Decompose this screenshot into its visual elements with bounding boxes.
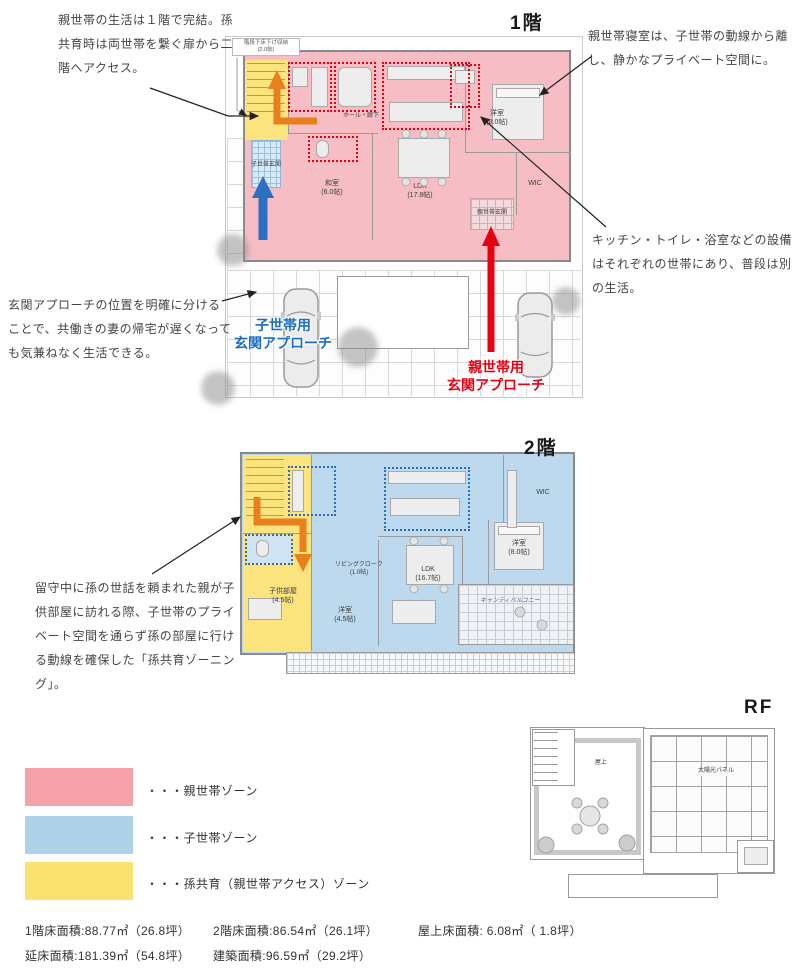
room-label-hall: ホール・廊下 (338, 113, 384, 121)
room-label-stair-storage: 階段下床下げ収納 (2.0帖) (232, 38, 300, 56)
pillow-icon-2f (498, 526, 540, 535)
floorplan-diagram: 親世帯の生活は１階で完結。孫共育時は両世帯を繋ぐ扉から二階へアクセス。 1階 親… (0, 0, 800, 975)
washitsu-name: 和室 (310, 180, 354, 189)
stat-roof-area: 屋上床面積: 6.08㎡（ 1.8坪） (418, 922, 582, 939)
floor2-title: 2階 (524, 433, 558, 460)
child-approach-line2: 玄関アプローチ (226, 334, 340, 352)
room-label-kids-room: 子供部屋 (4.5帖) (259, 588, 307, 606)
legend-swatch-child (25, 816, 133, 854)
child-approach-line1: 子世帯用 (226, 316, 340, 334)
floor2-stairs (246, 459, 284, 517)
wall (378, 540, 379, 646)
annotation-life-complete: 親世帯の生活は１階で完結。孫共育時は両世帯を繋ぐ扉から二階へアクセス。 (58, 8, 240, 80)
ldk-name-2f: LDK (407, 566, 449, 575)
floor2-toilet-box (245, 534, 293, 565)
wall (488, 520, 489, 584)
room-label-ldk-2f: LDK (16.7帖) (407, 566, 449, 584)
room-label-parent-entrance: 親世帯玄関 (468, 210, 516, 218)
bedroom-name-1f: 洋室 (470, 110, 524, 119)
room-label-wic-1f: WIC (518, 180, 552, 189)
living-cloak-name: リビングクローク (332, 562, 386, 570)
floor2-balcony (286, 652, 575, 674)
ldk-size-1f: (17.8帖) (398, 192, 442, 201)
floor1-washroom-box (288, 62, 332, 112)
wall (503, 455, 504, 532)
child-approach-label: 子世帯用 玄関アプローチ (226, 316, 340, 352)
legend-label-child: ・・・子世帯ゾーン (146, 829, 258, 846)
stat-building-area: 建築面積:96.59㎡（29.2坪） (213, 947, 371, 964)
room-label-living-cloak: リビングクローク (1.0帖) (332, 562, 386, 577)
parent-approach-line2: 玄関アプローチ (438, 376, 554, 394)
wall (465, 152, 571, 153)
legend-label-parent: ・・・親世帯ゾーン (146, 782, 258, 799)
legend-swatch-parent (25, 768, 133, 806)
washitsu-size: (6.0帖) (310, 189, 354, 198)
room-label-child-entrance: 子世帯玄関 (249, 162, 283, 170)
parent-approach-line1: 親世帯用 (438, 358, 554, 376)
wall (372, 133, 373, 240)
roof-stairs (534, 732, 558, 782)
ldk-name-1f: LDK (398, 183, 442, 192)
bedroom-main-name: 洋室 (497, 540, 541, 549)
floor1-utility-box (450, 64, 480, 108)
room-label-wic-2f: WIC (527, 489, 559, 498)
room-label-rooftop: 屋上 (584, 760, 618, 768)
annotation-facilities: キッチン・トイレ・浴室などの設備はそれぞれの世帯にあり、普段は別の生活。 (592, 228, 798, 300)
kids-room-size: (4.5帖) (259, 597, 307, 606)
stat-floor2-area: 2階床面積:86.54㎡（26.1坪） (213, 922, 378, 939)
dining-table-icon-1f (398, 138, 450, 178)
wall (288, 133, 378, 134)
parent-approach-label: 親世帯用 玄関アプローチ (438, 358, 554, 394)
roof-bottom-strip (568, 874, 718, 898)
stair-storage-size: (2.0帖) (234, 47, 298, 54)
floor1-bath-box (334, 62, 376, 112)
floor2-washroom-box (288, 466, 336, 516)
wic-closet-icon-2f (507, 470, 517, 528)
floor1-title: 1階 (510, 8, 544, 35)
bedroom-size-1f: (8.0帖) (470, 119, 524, 128)
living-cloak-size: (1.0帖) (332, 570, 386, 578)
floor1-entrance-court (337, 276, 469, 349)
bedroom-small-name: 洋室 (324, 607, 366, 616)
room-label-balcony: キャンティバルコニー (476, 598, 544, 606)
equipment-icon (744, 847, 768, 865)
annotation-grandchild-zoning: 留守中に孫の世話を頼まれた親が子供部屋に訪れる際、子世帯のプライベート空間を通ら… (35, 576, 243, 696)
floor1-stairs (247, 63, 285, 119)
roof-solar-panels (650, 735, 768, 853)
floor2-kitchen-box (384, 467, 470, 531)
pillow-icon-1f (496, 88, 540, 98)
legend-swatch-grandchild (25, 862, 133, 900)
kids-room-name: 子供部屋 (259, 588, 307, 597)
room-label-ldk-1f: LDK (17.8帖) (398, 183, 442, 201)
room-label-bedroom-main-2f: 洋室 (8.0帖) (497, 540, 541, 558)
annotation-parent-bedroom: 親世帯寝室は、子世帯の動線から離し、静かなプライベート空間に。 (588, 24, 796, 72)
bedroom-main-size: (8.0帖) (497, 549, 541, 558)
wall (378, 536, 462, 537)
floor2-cantilever-terrace (458, 584, 574, 645)
sofa-icon-2f (392, 600, 436, 624)
leader-grandchild-zoning (152, 517, 240, 574)
roof-title: RF (744, 697, 773, 719)
stat-floor1-area: 1階床面積:88.77㎡（26.8坪） (25, 922, 190, 939)
room-label-bedroom-1f: 洋室 (8.0帖) (470, 110, 524, 128)
room-label-solar: 太陽光パネル (686, 768, 746, 776)
bedroom-small-size: (4.5帖) (324, 616, 366, 625)
annotation-entrance-approach: 玄関アプローチの位置を明確に分けることで、共働きの妻の帰宅が遅くなっても気兼ねな… (8, 293, 232, 365)
floor1-toilet-box (308, 136, 358, 162)
room-label-washitsu: 和室 (6.0帖) (310, 180, 354, 198)
ldk-size-2f: (16.7帖) (407, 575, 449, 584)
stat-total-area: 延床面積:181.39㎡（54.8坪） (25, 947, 190, 964)
legend-label-grandchild: ・・・孫共育（親世帯アクセス）ゾーン (146, 875, 370, 892)
room-label-bedroom-small-2f: 洋室 (4.5帖) (324, 607, 366, 625)
wall (516, 152, 517, 215)
